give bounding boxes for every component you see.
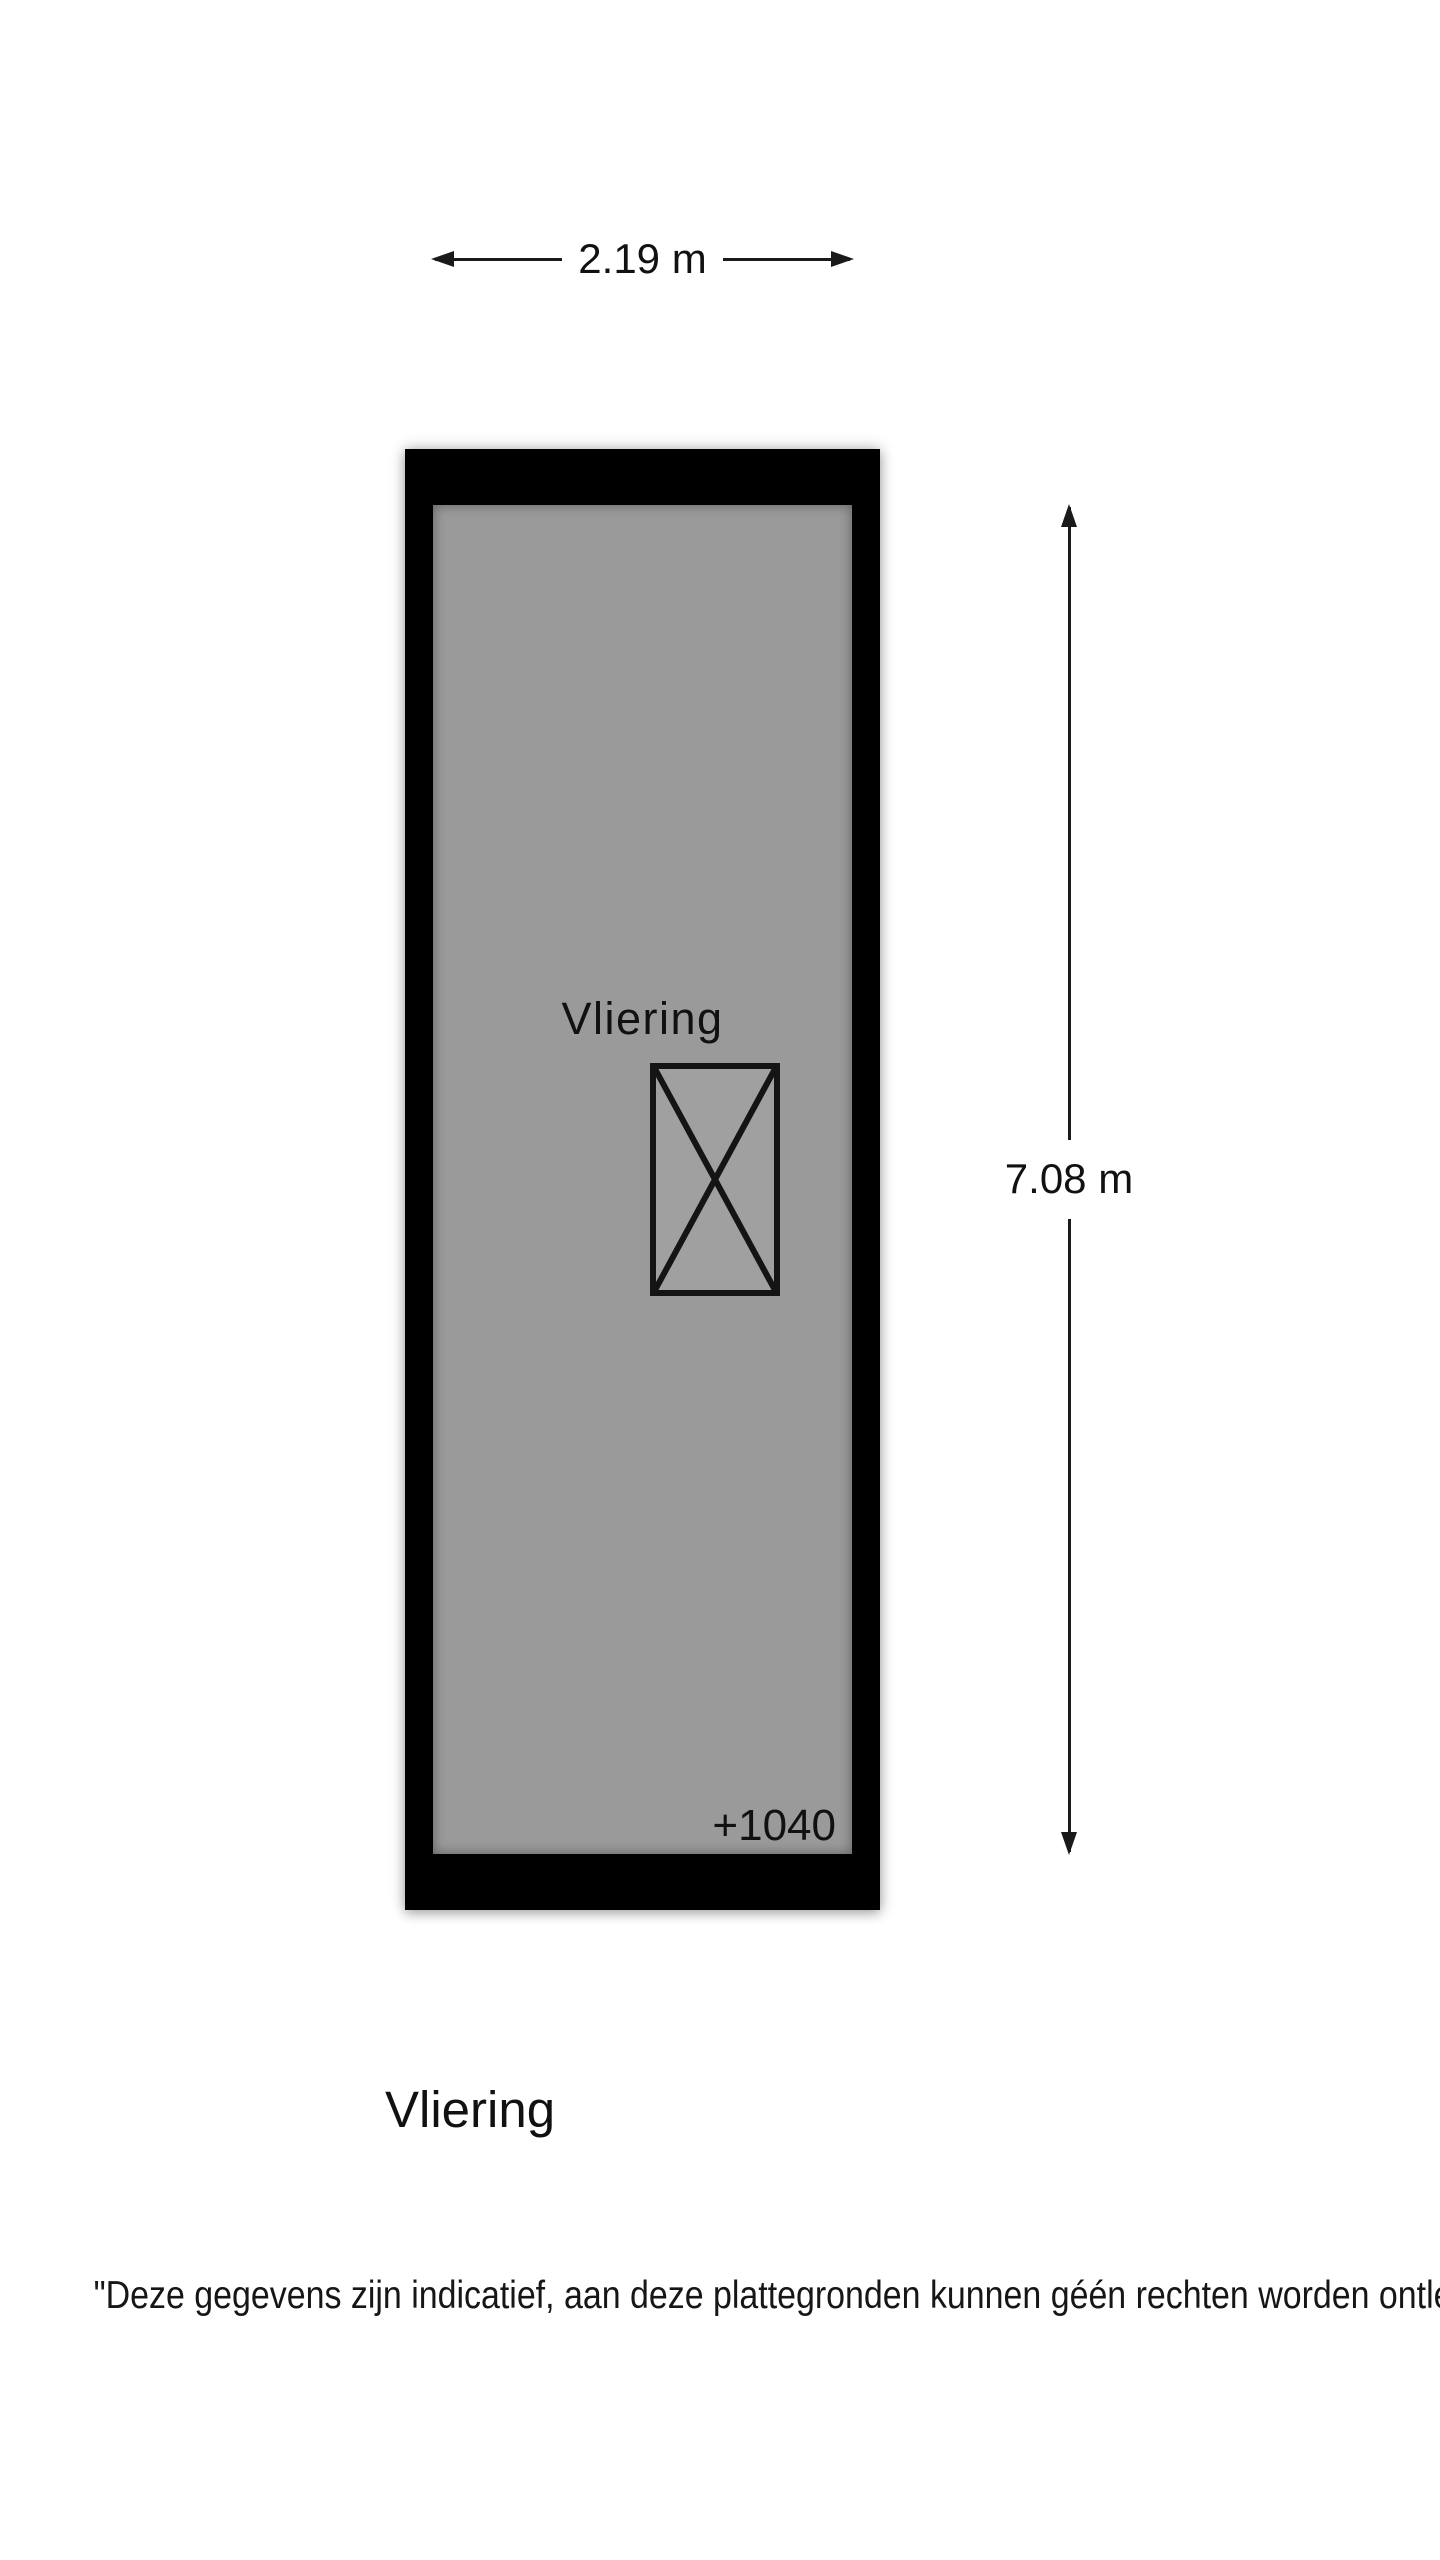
height-dimension: 7.08 m: [1048, 505, 1090, 1854]
plan-title: Vliering: [385, 2080, 555, 2139]
level-annotation: +1040: [712, 1802, 836, 1850]
height-dimension-label: 7.08 m: [999, 1140, 1139, 1218]
dimension-arrow-down-icon: [1061, 1832, 1077, 1855]
room-label: Vliering: [433, 993, 852, 1045]
dimension-arrow-left-icon: [431, 251, 454, 267]
width-dimension: 2.19 m: [433, 237, 852, 281]
dimension-arrow-right-icon: [831, 251, 854, 267]
hatch-opening-icon: [650, 1063, 780, 1296]
width-dimension-label: 2.19 m: [562, 236, 722, 282]
room-floor: Vliering +1040: [433, 505, 852, 1854]
floorplan-page: { "page": { "background_color": "#ffffff…: [0, 0, 1440, 2560]
room-vliering: Vliering +1040: [405, 449, 880, 1910]
disclaimer-text: "Deze gegevens zijn indicatief, aan deze…: [94, 2274, 1347, 2318]
dimension-arrow-up-icon: [1061, 504, 1077, 527]
